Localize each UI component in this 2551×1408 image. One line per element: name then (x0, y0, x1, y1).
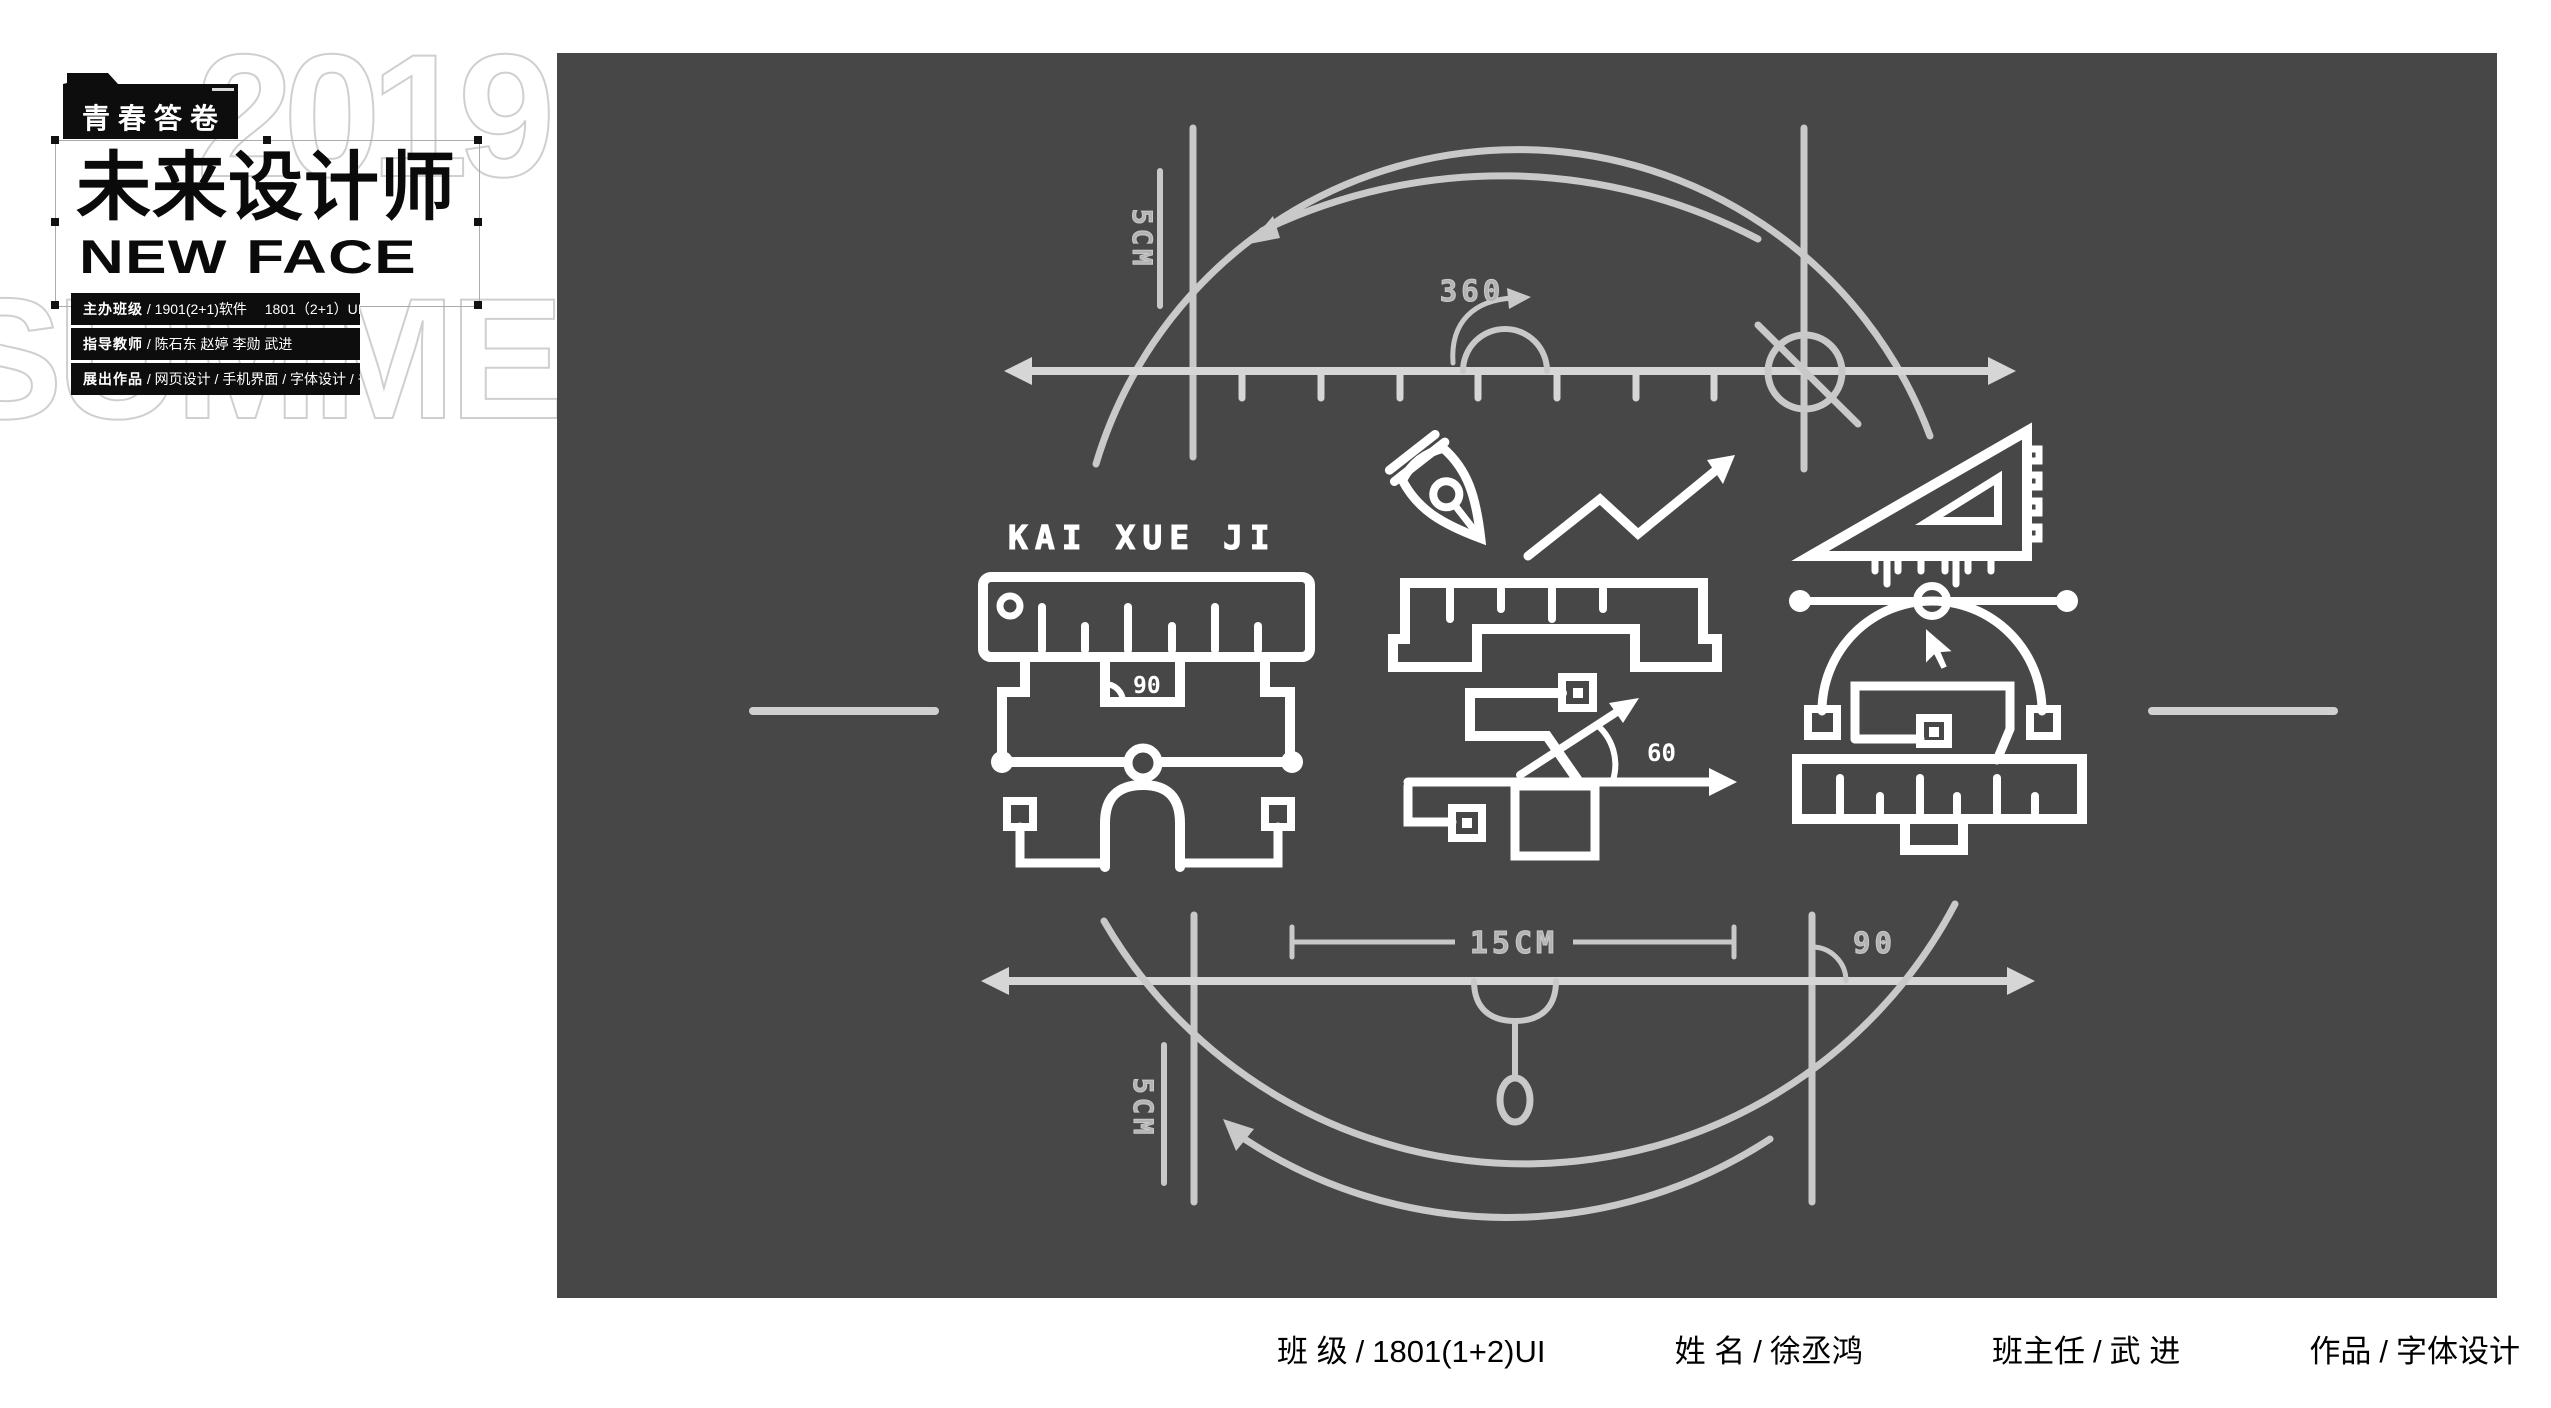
label-90-bottom: 90 (1853, 926, 1896, 960)
pendulum-icon (1474, 981, 1556, 1122)
logo-title-en[interactable]: NEW FACE (79, 233, 417, 280)
info-bar-label: 指导教师 (83, 336, 143, 352)
caption-row: 班 级/1801(1+2)UI 姓 名/徐丞鸿 班主任/武 进 作品/字体设计 (1277, 1326, 2520, 1371)
bezier-anchor-ring (1128, 748, 1158, 778)
info-bar-text: / 1901(2+1)软件 1801（2+1）UI (147, 301, 360, 317)
caption-name: 姓 名/徐丞鸿 (1675, 1326, 1863, 1371)
ruler-grommet-icon (1000, 596, 1020, 616)
glyph-layer: KAI XUE JI 90 (983, 431, 2082, 867)
axis-arrow-right-top (1988, 357, 2016, 385)
artboard[interactable]: 5CM 360 (557, 53, 2497, 1298)
bezier-node (991, 751, 1013, 773)
selection-handle[interactable] (263, 136, 271, 144)
poster-page: 2019 SUMMER 青春答卷 未来设计师 NEW FACE 主办班级 / 1… (0, 0, 2551, 1408)
info-bar-classes: 主办班级 / 1901(2+1)软件 1801（2+1）UI (71, 293, 360, 325)
logo-info-bars: 主办班级 / 1901(2+1)软件 1801（2+1）UI 指导教师 / 陈石… (71, 293, 360, 398)
crown-ticks (1450, 589, 1603, 619)
caption-class: 班 级/1801(1+2)UI (1277, 1326, 1545, 1371)
info-bar-label: 主办班级 (83, 301, 143, 317)
compass-arc-inner-bottom (1240, 1136, 1770, 1217)
pen-nib-icon (1387, 433, 1505, 559)
selection-handle[interactable] (474, 301, 482, 309)
logo-title-cn[interactable]: 未来设计师 (76, 150, 456, 225)
info-bar-label: 展出作品 (83, 371, 143, 387)
glyph-kai-ruler-icon: 90 (983, 577, 1310, 867)
caption-work: 作品/字体设计 (2309, 1326, 2520, 1371)
info-bar-text: / 陈石东 赵婷 李勋 武进 (147, 336, 292, 352)
label-90-glyph: 90 (1133, 673, 1161, 699)
axis-ticks-top (1242, 375, 1714, 398)
ruler-ticks (1042, 607, 1258, 650)
set-square-ticks (1875, 558, 1991, 584)
caption-teacher: 班主任/武 进 (1992, 1326, 2180, 1371)
label-5cm-top: 5CM (1126, 209, 1157, 270)
glyph-xue-icon: 60 (1387, 433, 1737, 856)
axis-arrow-left-bottom (981, 967, 1009, 995)
folder-label: 青春答卷 (82, 97, 226, 137)
ruler-bar-ticks (1840, 778, 2035, 813)
label-pinyin: KAI XUE JI (1008, 518, 1277, 557)
selection-handle[interactable] (474, 218, 482, 226)
glyph-ji-icon (1789, 431, 2082, 850)
cursor-icon (1925, 627, 1954, 670)
artwork-svg: 5CM 360 (557, 53, 2497, 1298)
info-bar-teachers: 指导教师 / 陈石东 赵婷 李勋 武进 (71, 328, 360, 360)
info-bar-works: 展出作品 / 网页设计 / 手机界面 / 字体设计 / 书籍封面 (71, 363, 360, 395)
label-360: 360 (1440, 274, 1504, 308)
guide-layer: 5CM 360 (753, 128, 2334, 1217)
selection-handle[interactable] (51, 218, 59, 226)
protractor-icon (1463, 329, 1547, 371)
axis-arrow-left-top (1004, 357, 1032, 385)
bezier-node (1789, 590, 1811, 612)
angle-60-arc (1597, 725, 1615, 780)
folder-fineprint (212, 88, 234, 91)
label-60: 60 (1647, 739, 1676, 767)
label-15cm: 15CM (1470, 926, 1558, 961)
right-angle-arc (1812, 947, 1846, 981)
baseline-arrowhead (1709, 768, 1737, 796)
selection-handle[interactable] (51, 301, 59, 309)
label-5cm-bottom: 5CM (1127, 1078, 1158, 1139)
bezier-node (2056, 590, 2078, 612)
selection-handle[interactable] (474, 136, 482, 144)
swirl-arrowhead (1507, 288, 1531, 309)
bezier-node (1281, 751, 1303, 773)
trend-arrow-line (1528, 471, 1715, 556)
selection-handle[interactable] (51, 136, 59, 144)
info-bar-text: / 网页设计 / 手机界面 / 字体设计 / 书籍封面 (147, 371, 360, 387)
axis-arrow-right-bottom (2007, 967, 2035, 995)
